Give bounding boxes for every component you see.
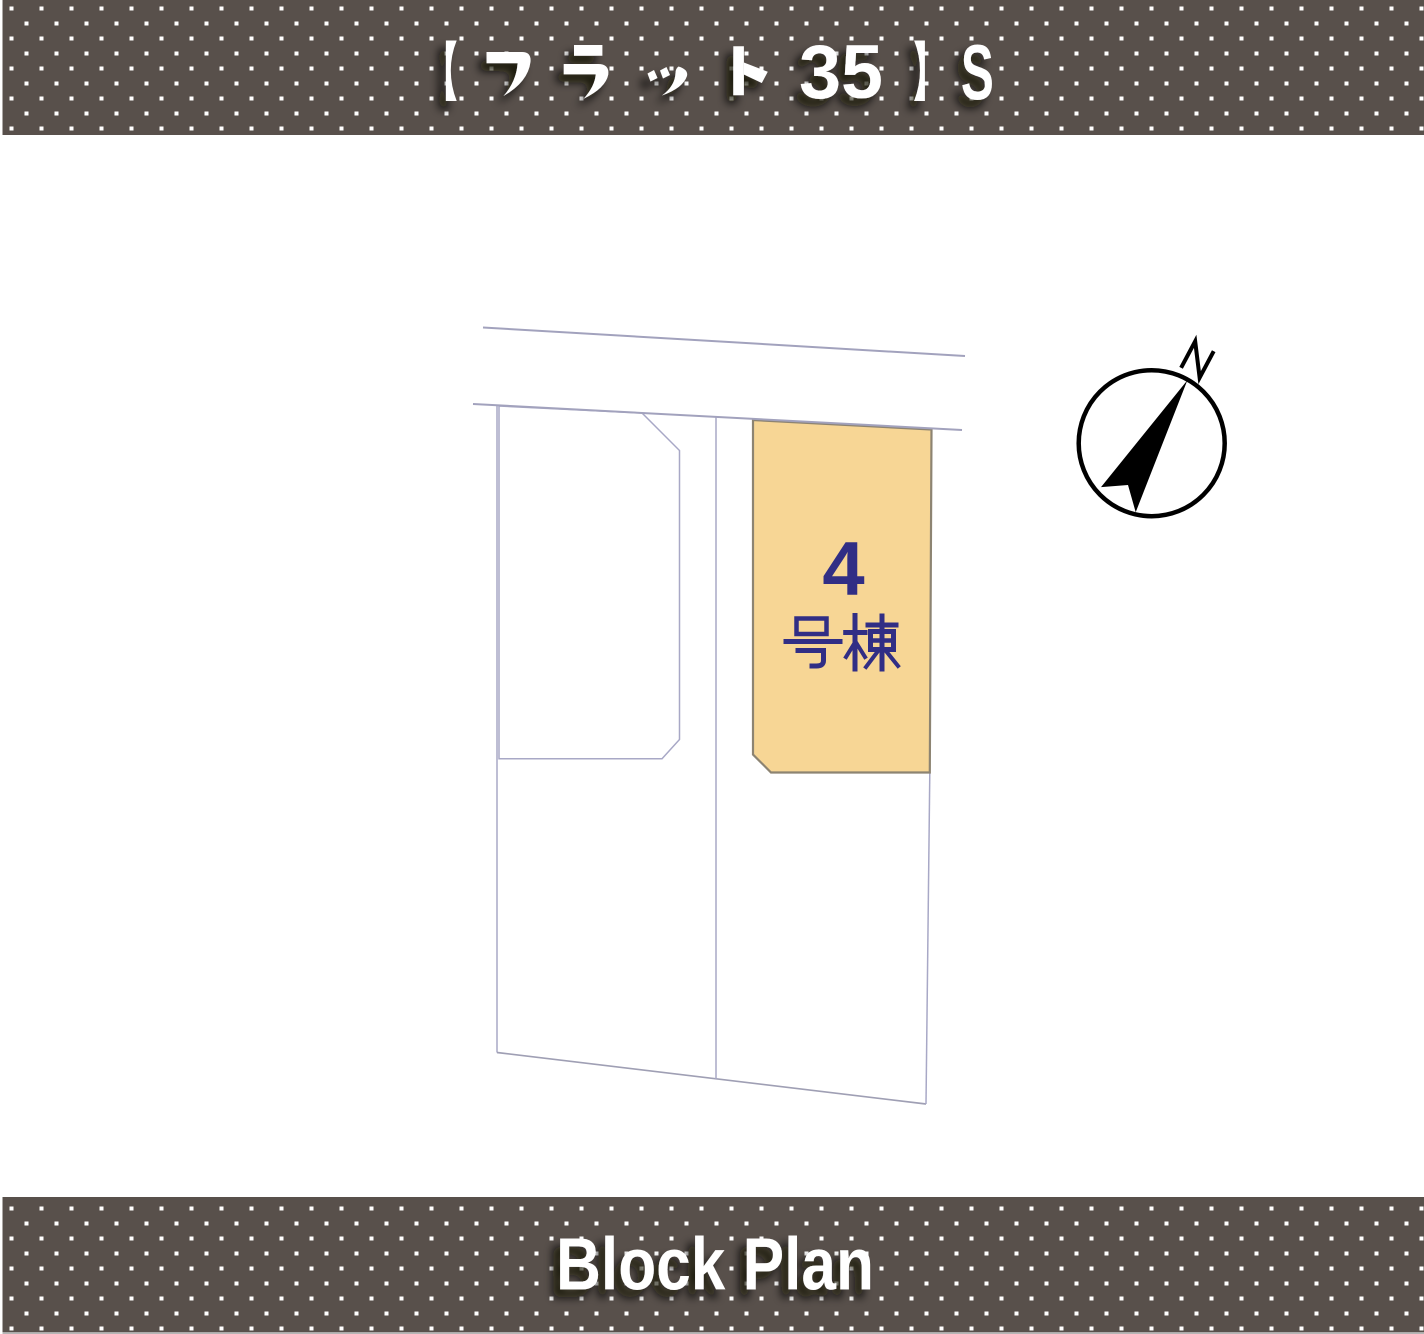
svg-text:Block Plan: Block Plan	[556, 1223, 874, 1306]
svg-text:35: 35	[799, 30, 883, 115]
svg-text:4: 4	[822, 527, 864, 612]
svg-text:S: S	[961, 28, 994, 116]
